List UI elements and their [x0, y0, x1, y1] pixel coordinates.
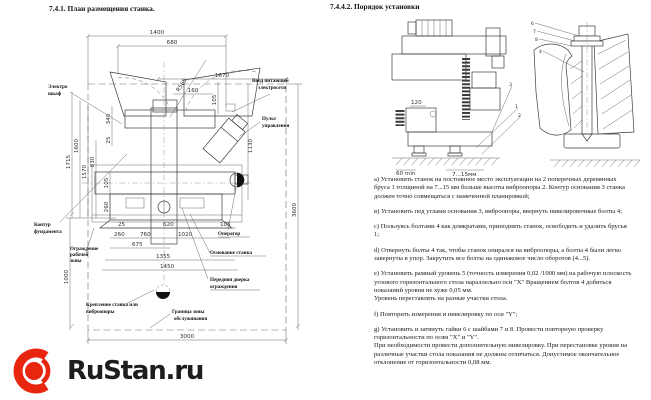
- logo-text: RuStan.ru: [67, 356, 203, 386]
- page: 7.4.1. План размещения станка. 7.4.4.2. …: [0, 0, 651, 400]
- label-front-door-2: ограждения: [210, 284, 238, 290]
- label-work-guard-2: рабочей: [70, 251, 88, 258]
- dim-25: 25: [106, 136, 112, 144]
- instruction-a: а) Установить станок на постоянное место…: [374, 176, 632, 201]
- dim-b620: 620: [163, 222, 174, 228]
- instruction-f: f) Повторить измерения и нивелировку по …: [374, 311, 632, 319]
- label-electro-cabinet-2: шкаф: [48, 90, 62, 97]
- dim-1400: 1400: [150, 30, 165, 36]
- ground-hatch-right: [550, 160, 640, 167]
- placement-plan-drawing: 1400 680 R565 1670 160 105 1715 1600 157…: [30, 22, 330, 347]
- operator-symbol: [230, 173, 244, 187]
- label-operator: Оператор: [218, 231, 240, 237]
- label-machine-mount: Крепление станка или: [86, 302, 138, 308]
- service-position-symbol: [156, 285, 170, 299]
- dim-1355: 1355: [156, 254, 171, 260]
- rustan-logo[interactable]: RuStan.ru: [8, 345, 203, 397]
- label-foundation-contour: Контур: [34, 222, 51, 228]
- dim-830: 830: [90, 156, 96, 167]
- callout-7: 7: [533, 29, 536, 35]
- dim-1450: 1450: [160, 264, 175, 270]
- dim-120: 120: [411, 100, 422, 106]
- label-service-zone-2: обслуживания: [174, 315, 207, 322]
- callout-4: 4: [539, 49, 542, 55]
- dim-1670: 1670: [215, 73, 230, 79]
- label-control-panel-2: управления: [262, 123, 290, 129]
- instruction-d: d) Отвернуть болты 4 так, чтобы станок о…: [374, 247, 632, 264]
- logo-mark-icon: [8, 345, 60, 397]
- dim-680: 680: [167, 40, 178, 46]
- label-front-door: Передняя дверка: [210, 277, 250, 283]
- dim-1130: 1130: [248, 138, 254, 153]
- dim-1000: 1000: [64, 269, 70, 284]
- service-zone-boundary: [88, 84, 286, 330]
- callout-1: 1: [515, 104, 518, 110]
- callout-6: 6: [531, 21, 534, 27]
- dim-b25: 25: [118, 222, 126, 228]
- left-section-title: 7.4.1. План размещения станка.: [49, 4, 155, 13]
- dim-105-mid: 105: [104, 177, 110, 188]
- label-machine-mount-2: виброопоры: [86, 308, 114, 315]
- dim-b675: 675: [132, 242, 143, 248]
- dim-160: 160: [188, 88, 199, 94]
- instruction-g: g) Установить и затянуть гайки 6 с шайба…: [374, 326, 632, 367]
- callout-8: 8: [535, 37, 538, 43]
- dim-b260: 260: [114, 232, 125, 238]
- dim-260: 260: [104, 201, 110, 212]
- callout-3: 3: [509, 82, 512, 88]
- label-service-zone: Граница зоны: [172, 309, 204, 315]
- dim-b1020: 1020: [178, 232, 193, 238]
- label-foundation-contour-2: фундамента: [34, 228, 62, 235]
- instruction-b: в) Установить под углами основания 3, ви…: [374, 208, 632, 216]
- dim-3600: 3600: [292, 202, 298, 217]
- right-section-title: 7.4.4.2. Порядок установки: [330, 2, 420, 11]
- instruction-e: е) Установить рамный уровень 5 (точность…: [374, 270, 632, 303]
- installation-drawing: 6 7 8 4 3 1 2 60 min 7...15мм 120: [388, 14, 650, 182]
- label-machine-base: Основание станка: [210, 250, 252, 256]
- label-electro-cabinet: Электро: [48, 84, 68, 90]
- instruction-c: с) Пользуясь болтами 4 как домкратами, п…: [374, 223, 632, 240]
- label-control-panel: Пульт: [262, 116, 277, 122]
- installation-instructions: а) Установить станок на постоянное место…: [374, 176, 632, 374]
- dim-1570: 1570: [82, 164, 88, 179]
- label-work-guard-3: зоны: [70, 258, 81, 264]
- dim-1600: 1600: [74, 138, 80, 153]
- dim-3000: 3000: [180, 334, 195, 340]
- callout-2: 2: [518, 113, 521, 119]
- control-panel-shape: [203, 112, 251, 163]
- label-power-input: Ввод питающей: [252, 77, 289, 84]
- dim-105-top: 105: [212, 94, 218, 105]
- label-power-input-2: электросети: [258, 85, 286, 91]
- dim-b760: 760: [140, 232, 151, 238]
- dim-1715: 1715: [66, 154, 72, 169]
